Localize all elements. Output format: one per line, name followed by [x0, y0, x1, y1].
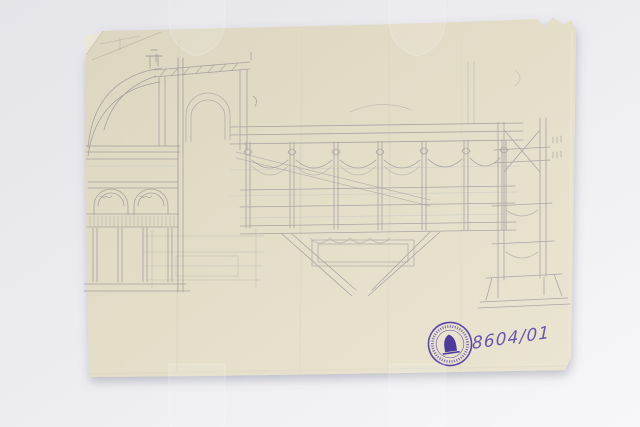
archival-photo: 8604/01	[0, 0, 640, 427]
paper-outline	[86, 17, 576, 377]
watermark-shield-icon	[169, 364, 225, 427]
watermark-shield-icon	[389, 364, 445, 427]
photo-canvas: 8604/01	[0, 0, 640, 427]
